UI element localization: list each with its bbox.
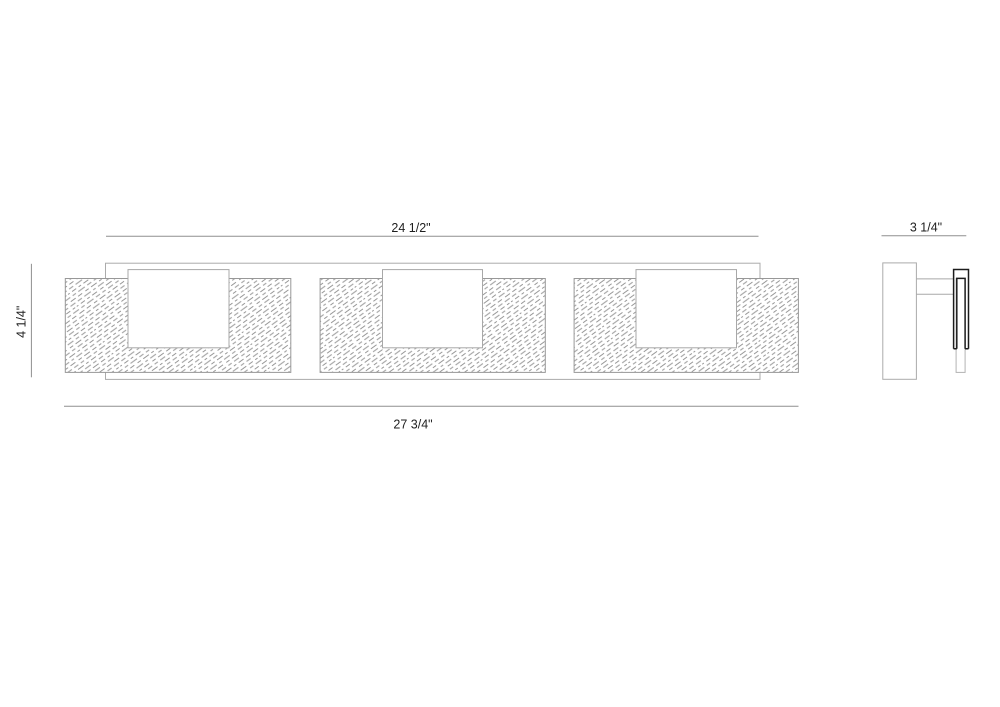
svg-text:27 3/4": 27 3/4" — [393, 417, 432, 431]
svg-text:4 1/4": 4 1/4" — [15, 306, 29, 338]
svg-text:24 1/2": 24 1/2" — [391, 221, 430, 235]
svg-text:3 1/4": 3 1/4" — [910, 221, 942, 235]
